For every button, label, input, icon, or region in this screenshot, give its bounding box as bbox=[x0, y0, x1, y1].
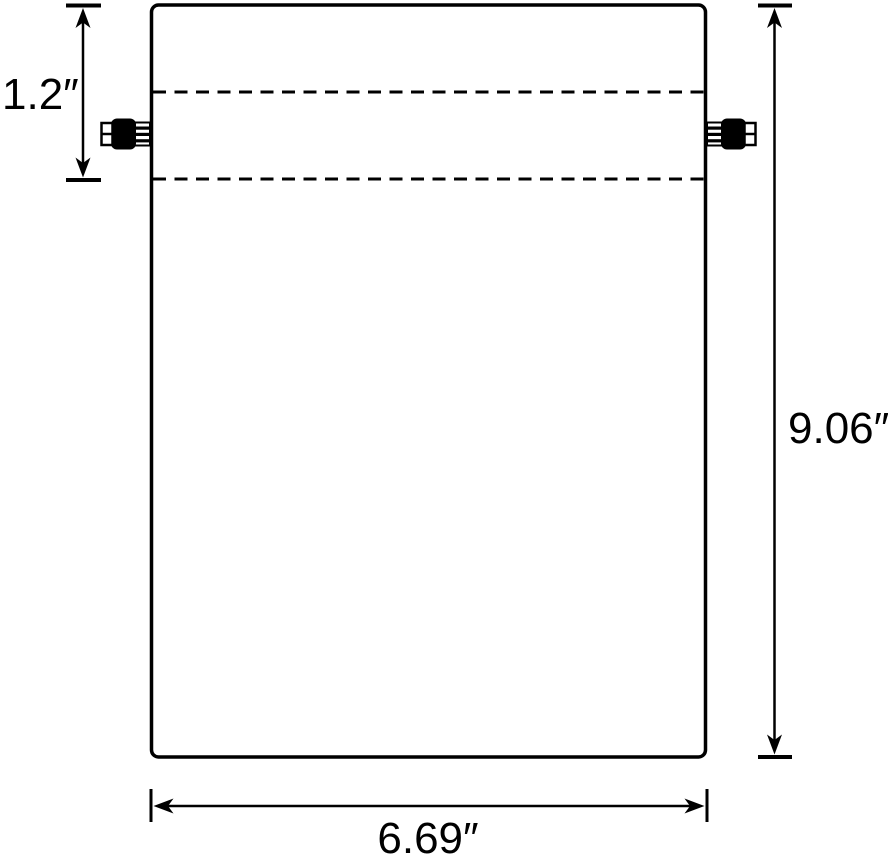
channel-depth-label: 1.2″ bbox=[2, 70, 79, 119]
left-cord-lock bbox=[101, 119, 152, 150]
width-label: 6.69″ bbox=[377, 814, 478, 856]
height-label: 9.06″ bbox=[788, 404, 888, 453]
dimension-height: 9.06″ bbox=[758, 6, 888, 758]
right-cord-lock bbox=[706, 119, 757, 150]
diagram-canvas: 1.2″ 9.06″ 6.69″ bbox=[0, 0, 888, 856]
bag bbox=[152, 5, 706, 757]
dimension-width: 6.69″ bbox=[151, 789, 707, 856]
right-cord-lock-body bbox=[721, 119, 746, 150]
dimension-diagram: 1.2″ 9.06″ 6.69″ bbox=[0, 0, 888, 856]
bag-outline bbox=[152, 5, 706, 757]
left-cord-lock-body bbox=[111, 119, 136, 150]
dimension-channel-depth: 1.2″ bbox=[2, 6, 101, 181]
